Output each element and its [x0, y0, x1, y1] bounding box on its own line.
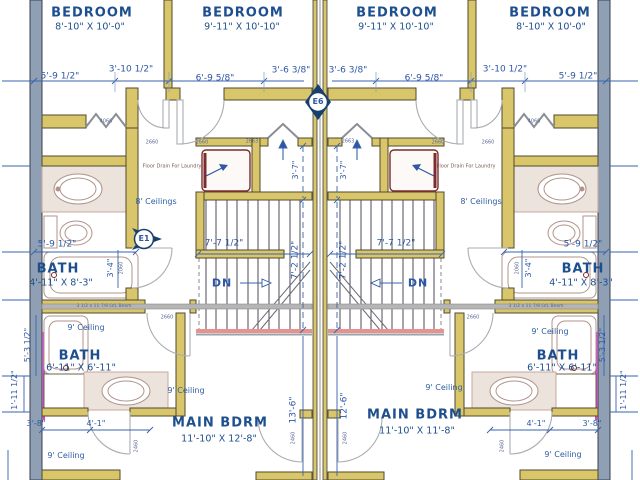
stair-down-label-right: DN — [408, 278, 428, 289]
dn-arrow-left — [262, 279, 271, 287]
closet-box-right — [556, 374, 596, 408]
dim-bdrm-depth-right: 12'-6" — [341, 392, 350, 419]
ceiling-note-main-left: 9' Ceiling — [167, 387, 204, 395]
ceiling-note-bath-left: 9' Ceiling — [67, 324, 104, 332]
room-label-main-bdrm-right: MAIN BDRM — [367, 409, 463, 422]
dim-closet-left-b: 4'-1" — [87, 420, 106, 428]
beam-note-right: 3 1/2 x 11 7/8 LVL Beam — [509, 305, 564, 310]
door-tag-bed-l1: 2660 — [146, 141, 159, 146]
room-label-bedroom-l2: BEDROOM — [202, 7, 284, 20]
dim-top-5: 3'-6 3/8" — [329, 67, 368, 76]
room-size-bath-lower-left: 6'-11" X 6'-11" — [46, 363, 116, 373]
dim-top-1: 5'-9 1/2" — [41, 73, 80, 82]
dn-arrow-right — [371, 279, 380, 287]
dim-stair-top-left: 3'-7" — [292, 161, 300, 180]
washer-right — [390, 150, 438, 191]
floor-drain-note-left: Floor Drain For Laundry — [143, 165, 202, 170]
room-label-bath-lower-right: BATH — [537, 350, 580, 363]
dim-stair-run-left: 7'-2 1/2" — [292, 241, 301, 280]
room-size-bedroom-l2: 9'-11" X 10'-10" — [204, 22, 280, 32]
dim-bath-width-left: 5'-9 1/2" — [38, 241, 77, 250]
ceiling-note-entry-left: 9' Ceiling — [47, 452, 84, 460]
attic-bifold-icon-right — [342, 124, 372, 138]
dim-tub-right: 5'-3 1/2" — [599, 328, 607, 362]
dim-tub-left: 5'-3 1/2" — [24, 328, 32, 362]
dim-top-8: 5'-9 1/2" — [559, 73, 598, 82]
dim-bath-width-right: 5'-9 1/2" — [564, 241, 603, 250]
stair-opening-edge-right — [328, 329, 444, 333]
door-tag-closet-left: 2460 — [292, 432, 297, 445]
dim-closet-right-a: 4'-1" — [527, 420, 546, 428]
floor-plan-canvas: BEDROOM 8'-10" X 10'-0" BEDROOM 9'-11" X… — [0, 0, 640, 480]
room-label-bath-upper-left: BATH — [37, 263, 80, 276]
dim-top-3: 6'-9 5/8" — [196, 75, 235, 84]
dim-vanity-right: 1'-11 1/2" — [620, 370, 628, 409]
room-size-bedroom-r2: 8'-10" X 10'-0" — [516, 22, 586, 32]
dim-vanity-left: 1'-11 1/2" — [11, 370, 19, 409]
dim-closet-left-a: 3'-8" — [27, 420, 46, 428]
dim-top-2: 3'-10 1/2" — [109, 66, 153, 75]
dim-top-7: 3'-10 1/2" — [483, 66, 527, 75]
room-label-bath-lower-left: BATH — [59, 350, 102, 363]
dim-top-4: 3'-6 3/8" — [272, 67, 311, 76]
room-label-bedroom-l1: BEDROOM — [51, 7, 133, 20]
dim-bath-door-right: 3'-4" — [525, 259, 533, 278]
ceiling-note-main-right: 9' Ceiling — [425, 384, 462, 392]
door-tag-bath-right: 2060 — [516, 262, 521, 275]
dim-top-6: 6'-9 5/8" — [405, 75, 444, 84]
attic-arrow-left — [279, 140, 287, 148]
ceiling-note-bath-right: 9' Ceiling — [531, 328, 568, 336]
dim-stair-width-right: 7'-7 1/2" — [377, 240, 416, 249]
beam-note-left: 3 1/2 x 11 7/8 LVL Beam — [77, 305, 132, 310]
door-tag-closet-right: 2460 — [344, 432, 349, 445]
room-label-bedroom-r1: BEDROOM — [356, 7, 438, 20]
dim-stair-width-left: 7'-7 1/2" — [205, 240, 244, 249]
door-tag-bed-r2: 2660 — [482, 141, 495, 146]
door-tag-bed-r1: 2660 — [432, 141, 445, 146]
dim-bdrm-depth-left: 13'-6" — [290, 396, 299, 423]
door-tag-attic-right: 2663 — [342, 140, 355, 145]
door-tag-bed-l2: 2660 — [196, 141, 209, 146]
room-label-main-bdrm-left: MAIN BDRM — [172, 417, 268, 430]
door-tag-bath2-right: 2460 — [501, 440, 506, 453]
room-size-bath-lower-right: 6'-11" X 6'-11" — [527, 363, 597, 373]
dim-stair-run-right: 7'-2 1/2" — [340, 241, 349, 280]
ceiling-note-hall-left: 8' Ceilings — [135, 198, 176, 206]
e1-marker-label: E1 — [138, 235, 149, 243]
stair-down-label-left: DN — [212, 278, 232, 289]
dim-closet-right-b: 3'-8" — [583, 420, 602, 428]
ceiling-note-entry-right: 9' Ceiling — [544, 451, 581, 459]
room-size-bath-upper-right: 4'-11" X 8'-3" — [549, 278, 613, 288]
door-tag-hall-right: 2660 — [467, 316, 480, 321]
dim-stair-top-right: 3'-7" — [340, 161, 348, 180]
room-size-main-bdrm-left: 11'-10" X 12'-8" — [181, 434, 257, 444]
room-size-main-bdrm-right: 11'-10" X 11'-8" — [379, 426, 455, 436]
door-tag-bath2-left: 2460 — [135, 440, 140, 453]
room-size-bedroom-r1: 9'-11" X 10'-10" — [358, 22, 434, 32]
dim-bath-door-left: 3'-4" — [107, 259, 115, 278]
ceiling-note-hall-right: 8' Ceilings — [460, 198, 501, 206]
room-label-bedroom-r2: BEDROOM — [509, 7, 591, 20]
door-tag-bifold-right: 4066 — [528, 120, 541, 125]
attic-bifold-icon-left — [268, 124, 298, 138]
washer-left — [202, 150, 250, 191]
closet-box-left — [44, 374, 84, 408]
e6-marker-label: E6 — [312, 98, 323, 106]
door-tag-hall-left: 2660 — [161, 316, 174, 321]
party-wall — [313, 0, 327, 480]
floorplan-drawing — [0, 0, 640, 480]
room-label-bath-upper-right: BATH — [562, 263, 605, 276]
door-tag-bifold-left: 4066 — [100, 120, 113, 125]
room-size-bath-upper-left: 4'-11" X 8'-3" — [29, 278, 93, 288]
stair-opening-edge-left — [196, 329, 312, 333]
door-tag-bath-left: 2060 — [120, 262, 125, 275]
floor-drain-note-right: Floor Drain For Laundry — [437, 165, 496, 170]
door-tag-attic-left: 2663 — [246, 140, 259, 145]
room-size-bedroom-l1: 8'-10" X 10'-0" — [55, 22, 125, 32]
